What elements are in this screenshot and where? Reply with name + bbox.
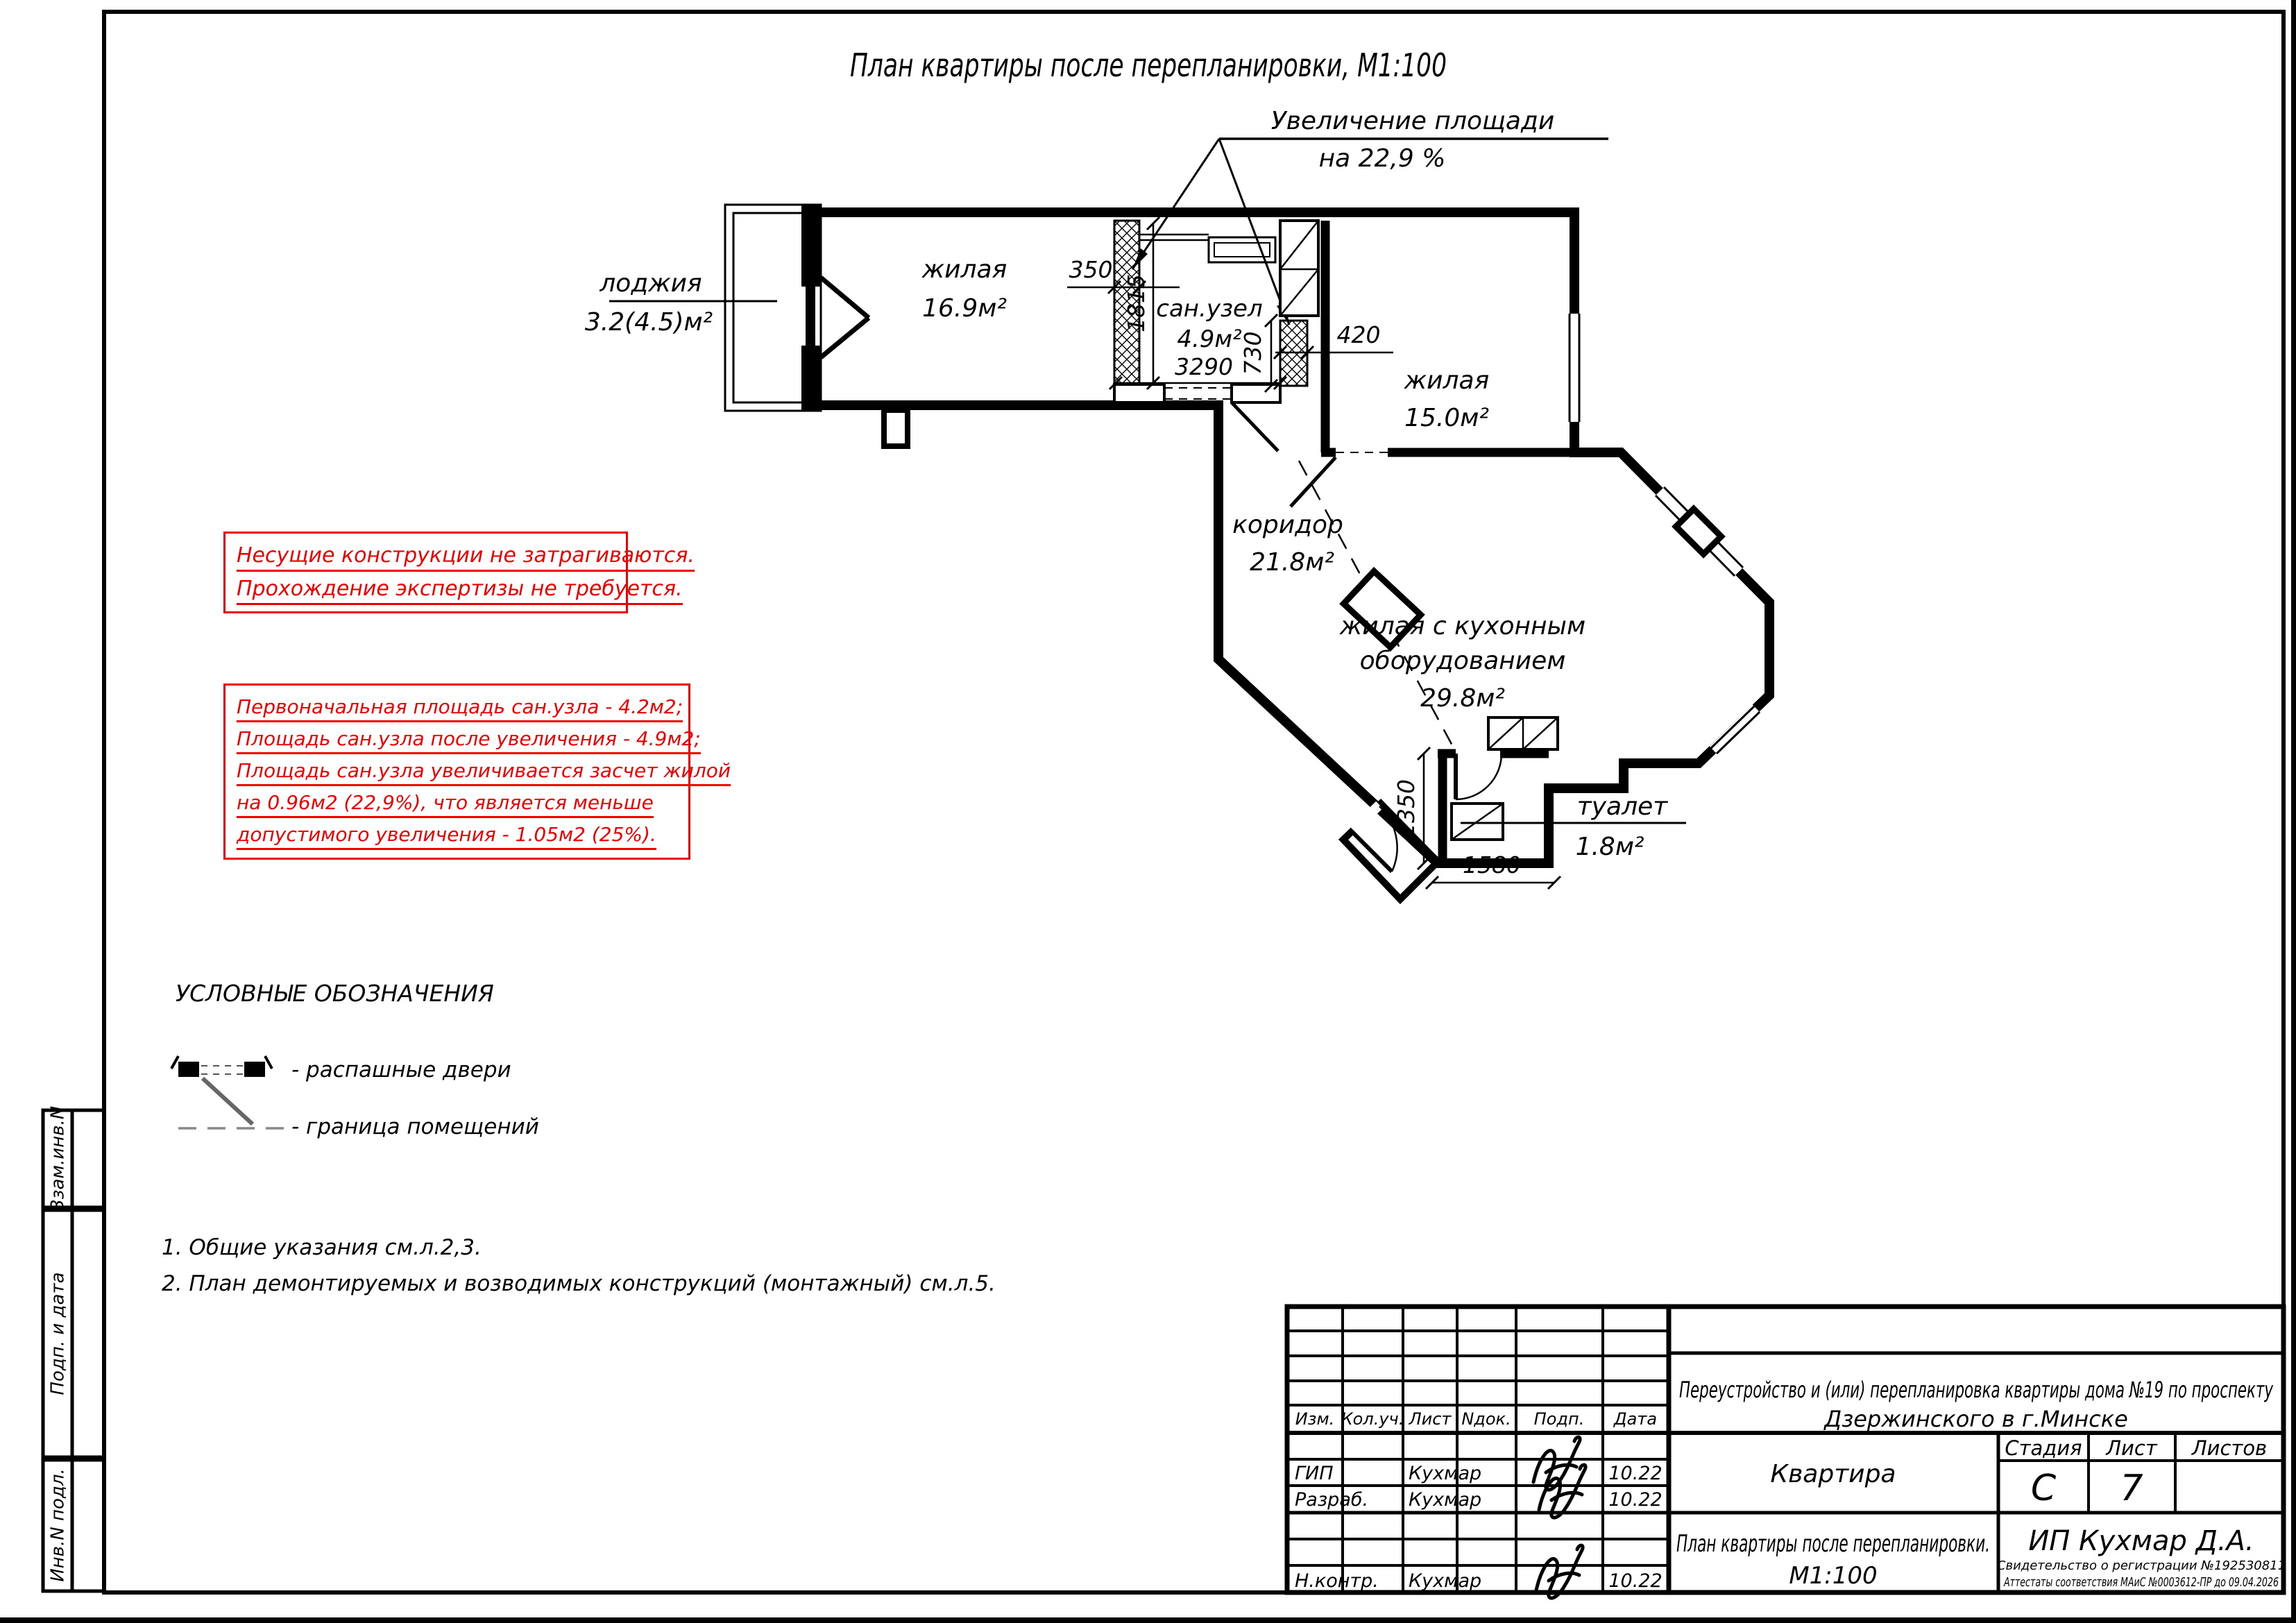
toilet-area: 1.8м²: [1576, 833, 1644, 861]
floor-plan: 350 1815 3290 730 420 1350 1580 лоджия 3…: [585, 205, 1769, 899]
red-note-line: на 0.96м2 (22,9%), что является меньше: [237, 791, 677, 823]
stamp-row-razrab-name: Кухмар: [1409, 1489, 1481, 1511]
stamp-stage-label: Стадия: [2005, 1436, 2082, 1460]
stamp-cert2: Аттестаты соответствия МАиС №0003612-ПР …: [2003, 1575, 2279, 1590]
kitchen-name-1: жилая с кухонным: [1339, 612, 1585, 640]
dim-730: 730: [1239, 332, 1266, 375]
living2-bottom-wall: [1291, 452, 1575, 507]
general-notes: 1. Общие указания см.л.2,3. 2. План демо…: [162, 1230, 996, 1302]
toilet-door-arc: [1456, 754, 1502, 799]
stamp-col-list: Лист: [1409, 1409, 1452, 1429]
kitchen-area: 29.8м²: [1420, 684, 1505, 713]
french-door-leaf-1: [821, 278, 869, 318]
title-block: Изм. Кол.уч. Лист Nдок. Подп. Дата ГИП К…: [1287, 1307, 2286, 1598]
dim-1350: 1350: [1393, 779, 1420, 838]
vent-shaft: [1280, 221, 1318, 316]
stamp-object: Квартира: [1771, 1460, 1896, 1488]
living2-window: [1565, 314, 1583, 422]
stamp-company: ИП Кухмар Д.А.: [2028, 1525, 2254, 1557]
legend-door-label: - распашные двери: [291, 1057, 511, 1082]
stamp-row-gip-name: Кухмар: [1409, 1463, 1481, 1484]
living2-name: жилая: [1404, 366, 1490, 395]
toilet-name: туалет: [1577, 792, 1668, 821]
living2-area: 15.0м²: [1404, 404, 1489, 432]
stamp-row-razrab-role: Разраб.: [1295, 1489, 1368, 1511]
shelf-lines: [1139, 235, 1209, 240]
dim-350: 350: [1069, 256, 1113, 283]
callout-leader-line-1: [1132, 139, 1219, 269]
stamp-project-line2: Дзержинского в г.Минске: [1823, 1406, 2128, 1432]
living2-door-leaf: [1291, 457, 1336, 507]
room-boundary-dashed: [1164, 388, 1232, 399]
dim-1815: 1815: [1123, 274, 1150, 332]
stamp-doc-line1: План квартиры после перепланировки.: [1676, 1530, 1990, 1558]
legend-door-leaf: [203, 1078, 253, 1124]
loggia-area: 3.2(4.5)м²: [585, 308, 713, 337]
stamp-col-izm: Изм.: [1295, 1409, 1334, 1429]
san-name: сан.узел: [1156, 295, 1262, 323]
stamp-sheet-value: 7: [2120, 1468, 2143, 1509]
stamp-row-nkontr-name: Кухмар: [1409, 1570, 1481, 1592]
legend-boundary-label: - граница помещений: [291, 1114, 539, 1139]
note-2: 2. План демонтируемых и возводимых конст…: [162, 1266, 996, 1302]
kitchen-name-2: оборудованием: [1360, 647, 1566, 675]
red-note-box-2: Первоначальная площадь сан.узла - 4.2м2;…: [223, 683, 690, 860]
stamp-col-ndok: Nдок.: [1461, 1409, 1511, 1429]
dim-1580: 1580: [1463, 851, 1521, 878]
stamp-row-nkontr-role: Н.контр.: [1295, 1570, 1379, 1592]
san-uzel-door-leaf: [1232, 402, 1278, 451]
dim-3290: 3290: [1175, 353, 1233, 380]
san-area: 4.9м²: [1177, 325, 1242, 353]
stamp-sheets-label: Листов: [2191, 1436, 2267, 1460]
french-door-leaf-2: [821, 318, 869, 357]
wall-pier: [884, 410, 908, 446]
red-note-line: Площадь сан.узла увеличивается засчет жи…: [237, 759, 677, 791]
stamp-row-nkontr-date: 10.22: [1608, 1570, 1662, 1592]
corridor-area: 21.8м²: [1250, 548, 1334, 577]
vent-box-pair: [1488, 717, 1558, 749]
callout-line1: Увеличение площади: [1271, 107, 1554, 135]
red-note-box-1: Несущие конструкции не затрагиваются. Пр…: [223, 532, 628, 613]
side-attribute-boxes: Взам.инв.N Подп. и дата Инв.N подл.: [43, 1106, 104, 1591]
stamp-cert1: Свидетельство о регистрации №192530811: [1997, 1558, 2286, 1573]
legend-title: УСЛОВНЫЕ ОБОЗНАЧЕНИЯ: [176, 980, 494, 1007]
corridor-name: коридор: [1232, 511, 1343, 539]
red-note-line: Первоначальная площадь сан.узла - 4.2м2;: [237, 695, 677, 727]
page-title: План квартиры после перепланировки, М1:1…: [850, 46, 1447, 84]
side-label-vzam: Взам.инв.N: [48, 1106, 69, 1212]
stamp-col-podp: Подп.: [1534, 1409, 1585, 1429]
side-label-podp: Подп. и дата: [48, 1272, 69, 1395]
living1-name: жилая: [921, 255, 1007, 284]
stamp-col-data: Дата: [1613, 1409, 1657, 1429]
note-1: 1. Общие указания см.л.2,3.: [162, 1230, 996, 1266]
legend-symbols: [171, 1056, 293, 1128]
loggia: [725, 205, 869, 411]
stamp-sheet-label: Лист: [2105, 1436, 2158, 1460]
red-note-line: допустимого увеличения - 1.05м2 (25%).: [237, 823, 677, 855]
red-note-line: Несущие конструкции не затрагиваются.: [237, 543, 615, 577]
dim-420: 420: [1337, 321, 1381, 348]
kitchen-bay-window-2: [1711, 706, 1760, 754]
stamp-stage-value: С: [2031, 1468, 2057, 1509]
toilet-room: [1438, 754, 1549, 863]
red-note-line: Прохождение экспертизы не требуется.: [237, 577, 615, 610]
living1-area: 16.9м²: [922, 294, 1007, 323]
drawing-sheet: Взам.инв.N Подп. и дата Инв.N подл. План…: [0, 0, 2296, 1623]
stamp-col-koluch: Кол.уч.: [1341, 1409, 1404, 1429]
loggia-name: лоджия: [599, 269, 701, 298]
stamp-doc-line2: М1:100: [1789, 1562, 1877, 1590]
callout-line2: на 22,9 %: [1319, 144, 1446, 173]
side-label-inv: Инв.N подл.: [48, 1468, 69, 1582]
red-note-line: Площадь сан.узла после увеличения - 4.9м…: [237, 727, 677, 759]
kitchen-bay-window-1: [1656, 487, 1743, 576]
stamp-project-line1: Переустройство и (или) перепланировка кв…: [1679, 1377, 2274, 1403]
stamp-row-gip-role: ГИП: [1295, 1463, 1334, 1484]
stamp-row-razrab-date: 10.22: [1608, 1489, 1662, 1511]
stamp-row-gip-date: 10.22: [1608, 1463, 1662, 1484]
signature-gip: [1533, 1437, 1580, 1490]
